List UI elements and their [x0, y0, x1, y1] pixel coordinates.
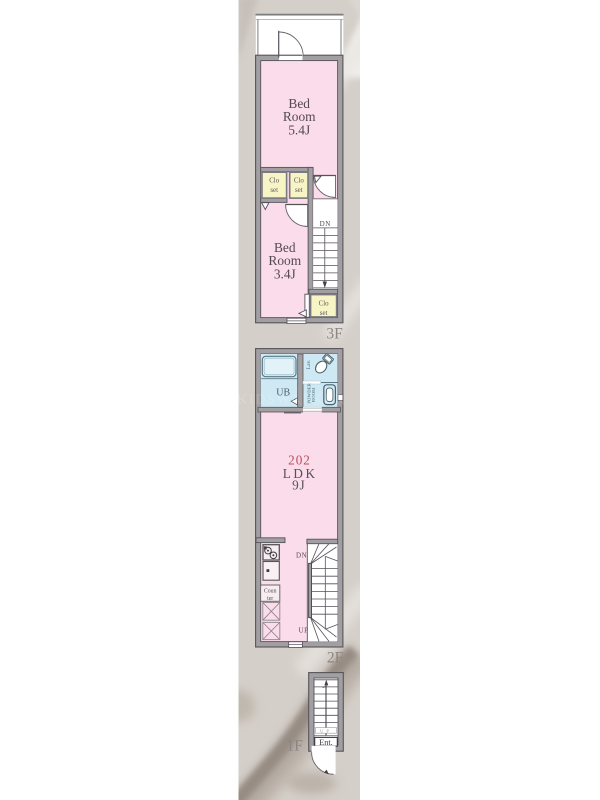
svg-text:Clo: Clo — [319, 300, 330, 307]
svg-text:1F: 1F — [287, 737, 304, 754]
svg-text:Ent.: Ent. — [319, 738, 332, 747]
svg-text:set: set — [270, 187, 278, 194]
svg-text:Clo: Clo — [269, 178, 280, 185]
svg-text:3F: 3F — [326, 326, 343, 343]
svg-text:3.4J: 3.4J — [274, 266, 296, 281]
svg-text:Clo: Clo — [294, 178, 305, 185]
svg-text:9J: 9J — [292, 477, 305, 492]
svg-text:DN: DN — [320, 220, 331, 228]
svg-text:2F: 2F — [327, 649, 344, 666]
svg-text:Coun: Coun — [264, 589, 277, 595]
svg-text:Lav.: Lav. — [306, 360, 312, 369]
svg-text:UP: UP — [299, 627, 309, 635]
svg-text:UP: UP — [320, 728, 332, 733]
svg-text:5.4J: 5.4J — [288, 122, 310, 137]
svg-text:set: set — [295, 187, 303, 194]
svg-text:DN: DN — [296, 552, 307, 560]
svg-text:ter: ter — [267, 596, 273, 602]
svg-text:set: set — [320, 310, 328, 317]
svg-text:KIDSWALKER: KIDSWALKER — [237, 393, 346, 408]
